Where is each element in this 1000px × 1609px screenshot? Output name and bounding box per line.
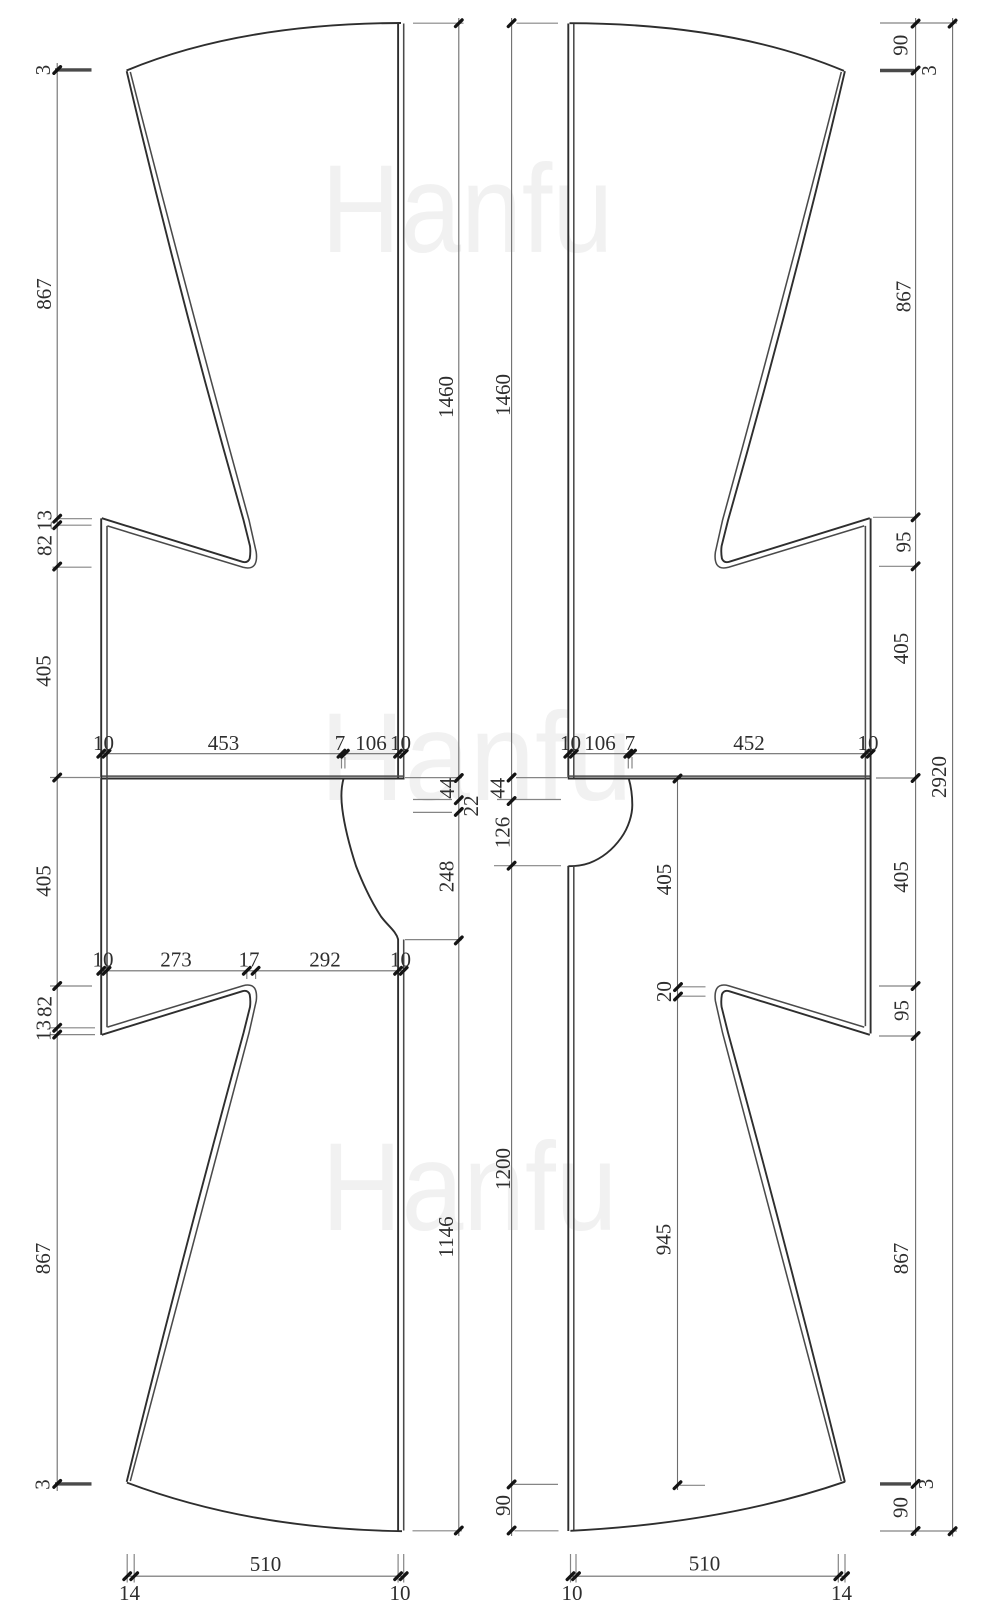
svg-text:1146: 1146 (434, 1216, 458, 1257)
svg-text:248: 248 (435, 861, 459, 893)
svg-text:945: 945 (652, 1224, 676, 1256)
svg-text:7: 7 (335, 731, 346, 755)
svg-text:10: 10 (93, 731, 114, 755)
svg-text:10: 10 (390, 731, 411, 755)
svg-text:3: 3 (31, 65, 55, 76)
svg-text:10: 10 (390, 948, 411, 972)
svg-text:82: 82 (33, 535, 57, 556)
svg-text:10: 10 (390, 1581, 411, 1605)
svg-text:20: 20 (652, 981, 676, 1002)
svg-text:90: 90 (889, 1497, 913, 1518)
svg-text:10: 10 (858, 731, 879, 755)
svg-text:867: 867 (32, 278, 56, 310)
svg-text:3: 3 (31, 1479, 55, 1490)
svg-text:10: 10 (93, 948, 114, 972)
svg-text:453: 453 (208, 731, 240, 755)
svg-text:14: 14 (119, 1581, 141, 1605)
svg-text:867: 867 (892, 281, 916, 313)
svg-text:22: 22 (459, 796, 483, 817)
svg-text:405: 405 (32, 865, 56, 897)
svg-text:867: 867 (889, 1243, 913, 1275)
svg-text:14: 14 (831, 1581, 853, 1605)
svg-text:273: 273 (160, 948, 192, 972)
svg-text:126: 126 (491, 817, 515, 849)
svg-text:106: 106 (584, 731, 616, 755)
svg-text:405: 405 (652, 864, 676, 896)
svg-text:3: 3 (914, 1479, 938, 1490)
svg-text:44: 44 (486, 777, 510, 799)
svg-text:405: 405 (32, 655, 56, 687)
svg-text:1460: 1460 (491, 374, 515, 416)
svg-text:82: 82 (33, 996, 57, 1017)
svg-text:90: 90 (889, 35, 913, 56)
svg-text:292: 292 (309, 948, 341, 972)
svg-text:867: 867 (31, 1243, 55, 1275)
svg-text:95: 95 (890, 1000, 914, 1021)
svg-text:3: 3 (917, 65, 941, 76)
svg-text:13: 13 (33, 510, 57, 531)
svg-text:17: 17 (239, 948, 260, 972)
svg-text:10: 10 (560, 731, 581, 755)
svg-text:106: 106 (355, 731, 387, 755)
svg-text:10: 10 (562, 1581, 583, 1605)
svg-text:510: 510 (250, 1552, 282, 1576)
svg-text:405: 405 (889, 633, 913, 665)
svg-text:7: 7 (625, 731, 636, 755)
svg-text:405: 405 (889, 861, 913, 893)
svg-text:13: 13 (32, 1020, 56, 1041)
svg-text:510: 510 (689, 1552, 721, 1576)
svg-text:90: 90 (491, 1495, 515, 1516)
svg-text:1460: 1460 (434, 376, 458, 418)
svg-text:95: 95 (892, 532, 916, 553)
svg-text:44: 44 (435, 777, 459, 799)
svg-text:1200: 1200 (491, 1148, 515, 1190)
svg-text:452: 452 (733, 731, 765, 755)
svg-text:Hanfu: Hanfu (321, 139, 613, 278)
svg-text:2920: 2920 (927, 756, 951, 798)
